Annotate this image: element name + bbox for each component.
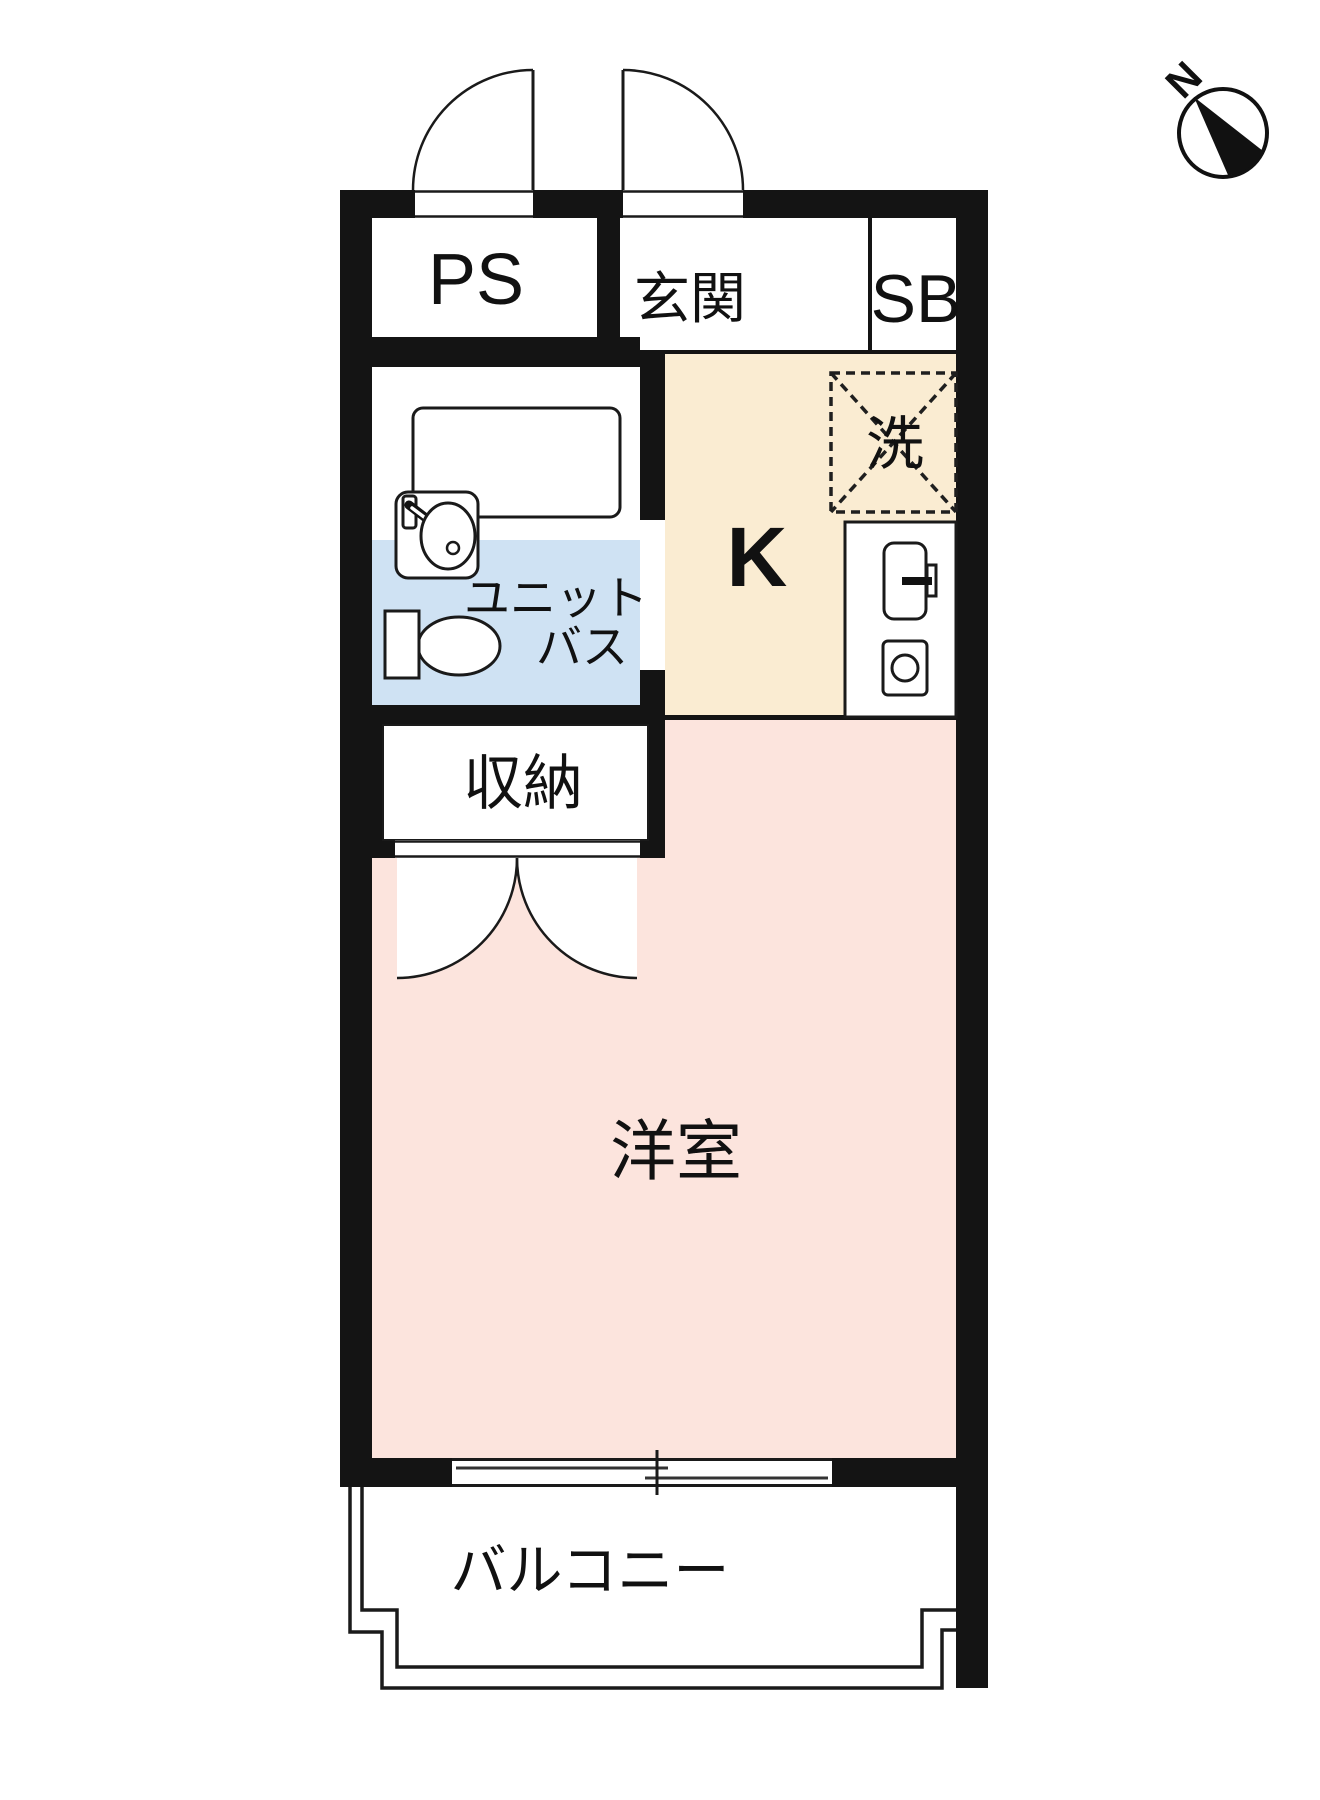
label-western-room: 洋室 <box>610 1114 742 1188</box>
wall-bath-right-upper <box>640 352 665 520</box>
basin-drain <box>447 542 459 554</box>
floor-plan: N PS 玄関 SB 洗 K ユニット バス 収納 洋室 バルコニー <box>0 0 1320 1800</box>
wash-basin <box>421 503 475 569</box>
wall-bottom-left <box>340 1458 452 1487</box>
label-washing-machine: 洗 <box>866 412 924 477</box>
wall-bottom-right <box>832 1458 988 1487</box>
wall-ps-bottom <box>340 337 640 367</box>
label-pipe-space: PS <box>428 240 524 320</box>
label-kitchen: K <box>727 510 788 604</box>
label-unit-bath-line2: バス <box>536 621 628 673</box>
line-entrance-bottom <box>620 350 956 354</box>
toilet-bowl <box>418 617 500 675</box>
gas-burner <box>892 655 918 681</box>
wall-left <box>340 190 372 1487</box>
label-unit-bath-line1: ユニット <box>464 572 648 624</box>
label-shoe-box: SB <box>871 261 962 337</box>
wall-bath-right-lower <box>640 670 665 705</box>
sink-faucet-lever <box>902 577 932 585</box>
label-storage: 収納 <box>463 750 583 817</box>
toilet-tank <box>385 611 419 678</box>
label-entrance: 玄関 <box>634 267 746 330</box>
label-balcony: バルコニー <box>451 1539 730 1602</box>
